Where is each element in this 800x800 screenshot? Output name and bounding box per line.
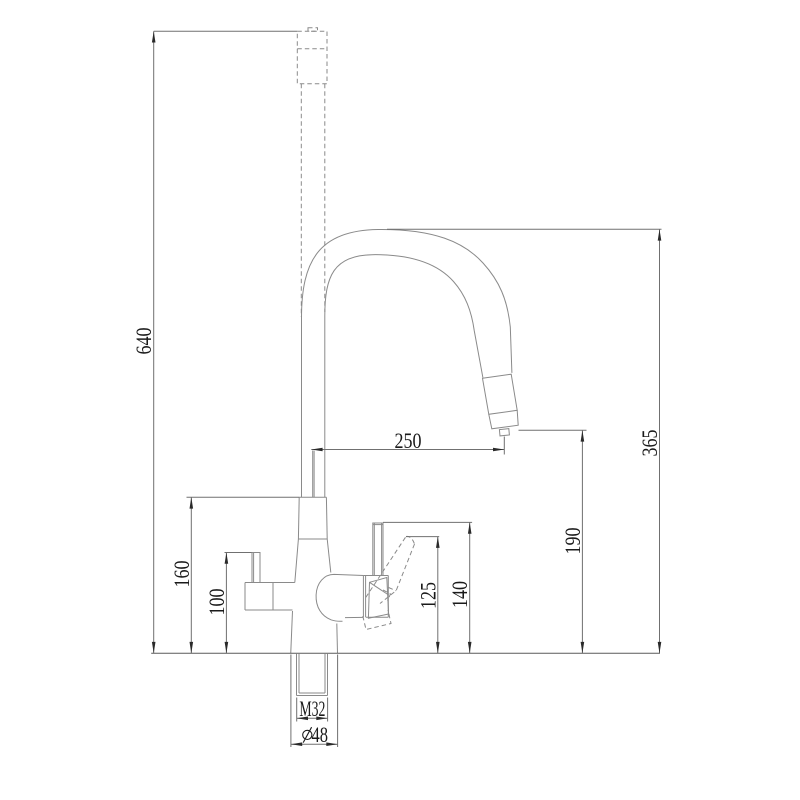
svg-text:365: 365 xyxy=(637,430,662,457)
svg-text:M32: M32 xyxy=(299,696,325,721)
svg-text:190: 190 xyxy=(560,528,585,555)
svg-text:160: 160 xyxy=(169,561,194,588)
svg-text:48: 48 xyxy=(312,722,329,747)
svg-text:640: 640 xyxy=(131,328,156,355)
svg-text:140: 140 xyxy=(447,581,472,608)
svg-text:125: 125 xyxy=(415,582,440,609)
svg-text:250: 250 xyxy=(395,428,422,453)
svg-text:100: 100 xyxy=(204,589,229,616)
